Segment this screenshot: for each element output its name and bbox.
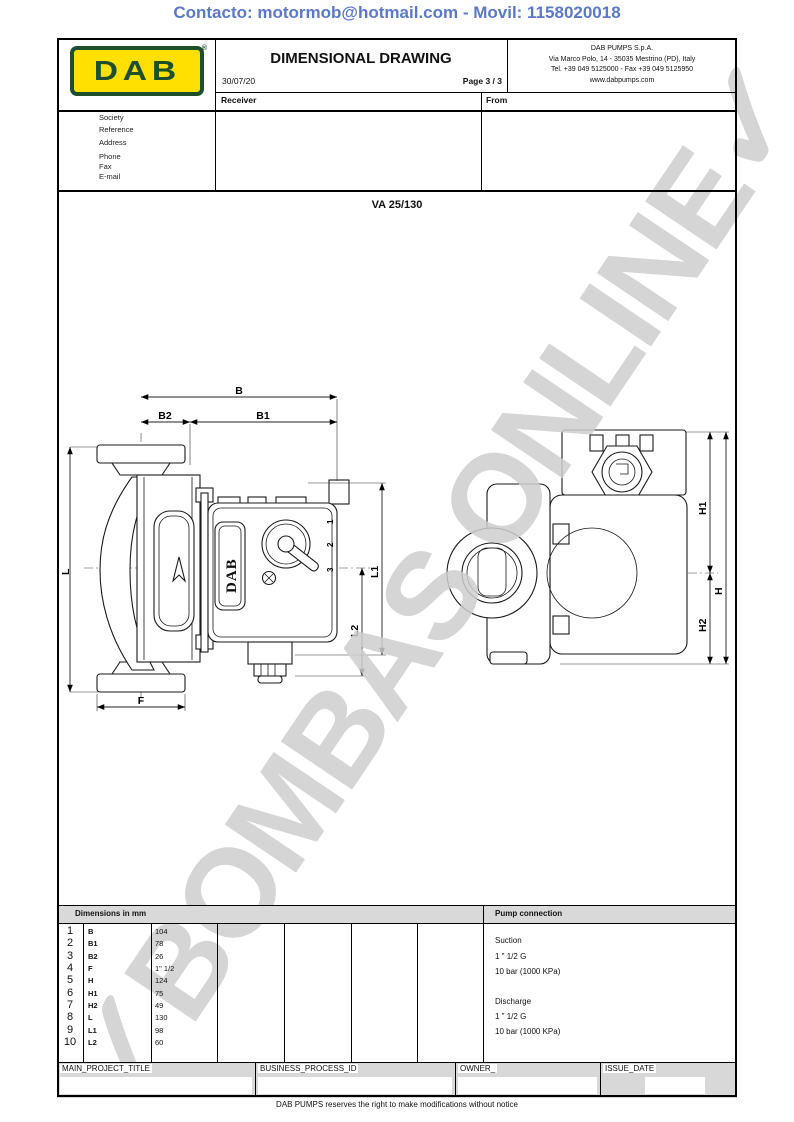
knob-position-2: 2 — [326, 542, 335, 547]
dim-name: L2 — [88, 1038, 97, 1047]
field-label-phone: Phone — [99, 152, 121, 161]
dim-value: 60 — [155, 1038, 163, 1047]
dim-value: 1" 1/2 — [155, 964, 174, 973]
dim-name: F — [88, 964, 93, 973]
document-title: DIMENSIONAL DRAWING — [215, 50, 507, 67]
company-line: Via Marco Polo, 14 - 35035 Mestrino (PD)… — [509, 55, 735, 66]
field-label-fax: Fax — [99, 162, 112, 171]
dim-value: 98 — [155, 1026, 163, 1035]
dim-name: H1 — [88, 989, 98, 998]
registered-mark: ® — [202, 45, 207, 52]
date-redaction-overlay — [256, 70, 336, 92]
pump-side-view-drawing: DAB 1 2 3 — [62, 385, 402, 717]
field-label-reference: Reference — [99, 125, 134, 134]
receiver-value-area[interactable] — [216, 111, 481, 190]
dim-label-H: H — [713, 587, 725, 595]
suction-pressure: 10 bar (1000 KPa) — [495, 967, 560, 976]
dim-name: L1 — [88, 1026, 97, 1035]
field-label-email: E-mail — [99, 172, 120, 181]
dim-value: 75 — [155, 989, 163, 998]
dimensions-header-label: Dimensions in mm — [75, 909, 146, 918]
divider — [215, 92, 737, 93]
dim-value: 130 — [155, 1013, 168, 1022]
discharge-label: Discharge — [495, 997, 531, 1006]
knob-position-3: 3 — [326, 567, 335, 572]
row-number: 1 — [57, 925, 83, 937]
divider — [455, 1062, 456, 1097]
divider — [57, 190, 737, 192]
model-title: VA 25/130 — [57, 199, 737, 211]
row-number: 4 — [57, 962, 83, 974]
dim-name: L — [88, 1013, 93, 1022]
dim-label-F: F — [138, 695, 145, 707]
pump-front-view-drawing: H1 H H2 — [440, 420, 740, 680]
dim-label-H2: H2 — [697, 618, 709, 632]
divider — [255, 1062, 256, 1097]
table-column-line — [351, 923, 352, 1062]
footer-field-business-process-id: BUSINESS_PROCESS_ID — [258, 1064, 358, 1073]
dim-label-B2: B2 — [158, 410, 172, 422]
divider — [507, 38, 508, 92]
dim-label-B: B — [235, 385, 243, 397]
from-value-area[interactable] — [482, 111, 737, 190]
knob-position-1: 1 — [326, 519, 335, 524]
dim-value: 49 — [155, 1001, 163, 1010]
dim-name: H2 — [88, 1001, 98, 1010]
business-process-id-input[interactable] — [258, 1077, 452, 1094]
dim-label-L: L — [60, 568, 72, 575]
footer-field-issue-date: ISSUE_DATE — [603, 1064, 656, 1073]
table-column-line — [151, 923, 152, 1062]
divider — [483, 905, 484, 1062]
from-label: From — [486, 95, 507, 105]
divider — [57, 905, 737, 906]
dim-name: B2 — [88, 952, 98, 961]
main-project-title-input[interactable] — [60, 1077, 252, 1094]
dim-name: B — [88, 927, 93, 936]
company-line: DAB PUMPS S.p.A. — [509, 44, 735, 55]
row-number: 5 — [57, 974, 83, 986]
table-column-line — [417, 923, 418, 1062]
row-number: 7 — [57, 999, 83, 1011]
page-indicator: Page 3 / 3 — [390, 76, 502, 86]
company-line: Tel. +39 049 5125000 - Fax +39 049 51259… — [509, 65, 735, 76]
dim-value: 104 — [155, 927, 168, 936]
dim-label-H1: H1 — [697, 501, 709, 515]
footer-field-main-project-title: MAIN_PROJECT_TITLE — [60, 1064, 152, 1073]
field-label-society: Society — [99, 113, 124, 122]
discharge-size: 1 " 1/2 G — [495, 1012, 526, 1021]
dim-name: B1 — [88, 939, 98, 948]
field-label-address: Address — [99, 138, 127, 147]
contact-banner: Contacto: motormob@hotmail.com - Movil: … — [0, 3, 794, 23]
dim-value: 124 — [155, 976, 168, 985]
row-number: 6 — [57, 987, 83, 999]
company-line: www.dabpumps.com — [509, 76, 735, 87]
dim-value: 78 — [155, 939, 163, 948]
company-address: DAB PUMPS S.p.A. Via Marco Polo, 14 - 35… — [509, 44, 735, 86]
footer-field-owner: OWNER_ — [458, 1064, 497, 1073]
table-column-line — [83, 923, 84, 1062]
row-number: 3 — [57, 950, 83, 962]
dim-label-L2: L2 — [349, 625, 361, 637]
dim-name: H — [88, 976, 93, 985]
row-number: 10 — [57, 1036, 83, 1048]
disclaimer-text: DAB PUMPS reserves the right to make mod… — [0, 1100, 794, 1109]
dab-logo-text: DAB — [93, 55, 180, 87]
table-column-line — [284, 923, 285, 1062]
receiver-label: Receiver — [221, 95, 256, 105]
row-number: 8 — [57, 1011, 83, 1023]
suction-size: 1 " 1/2 G — [495, 952, 526, 961]
dim-value: 26 — [155, 952, 163, 961]
dim-label-L1: L1 — [369, 566, 381, 578]
row-number: 2 — [57, 937, 83, 949]
suction-label: Suction — [495, 936, 522, 945]
table-column-line — [217, 923, 218, 1062]
pump-connection-header-label: Pump connection — [495, 909, 562, 918]
pump-logo-text: DAB — [224, 558, 240, 593]
dim-label-B1: B1 — [256, 410, 270, 422]
divider — [600, 1062, 601, 1097]
owner-input[interactable] — [458, 1077, 597, 1094]
dab-logo: DAB ® — [70, 46, 204, 96]
row-number: 9 — [57, 1024, 83, 1036]
issue-date-input[interactable] — [645, 1077, 705, 1094]
document-page: Contacto: motormob@hotmail.com - Movil: … — [0, 0, 794, 1122]
discharge-pressure: 10 bar (1000 KPa) — [495, 1027, 560, 1036]
